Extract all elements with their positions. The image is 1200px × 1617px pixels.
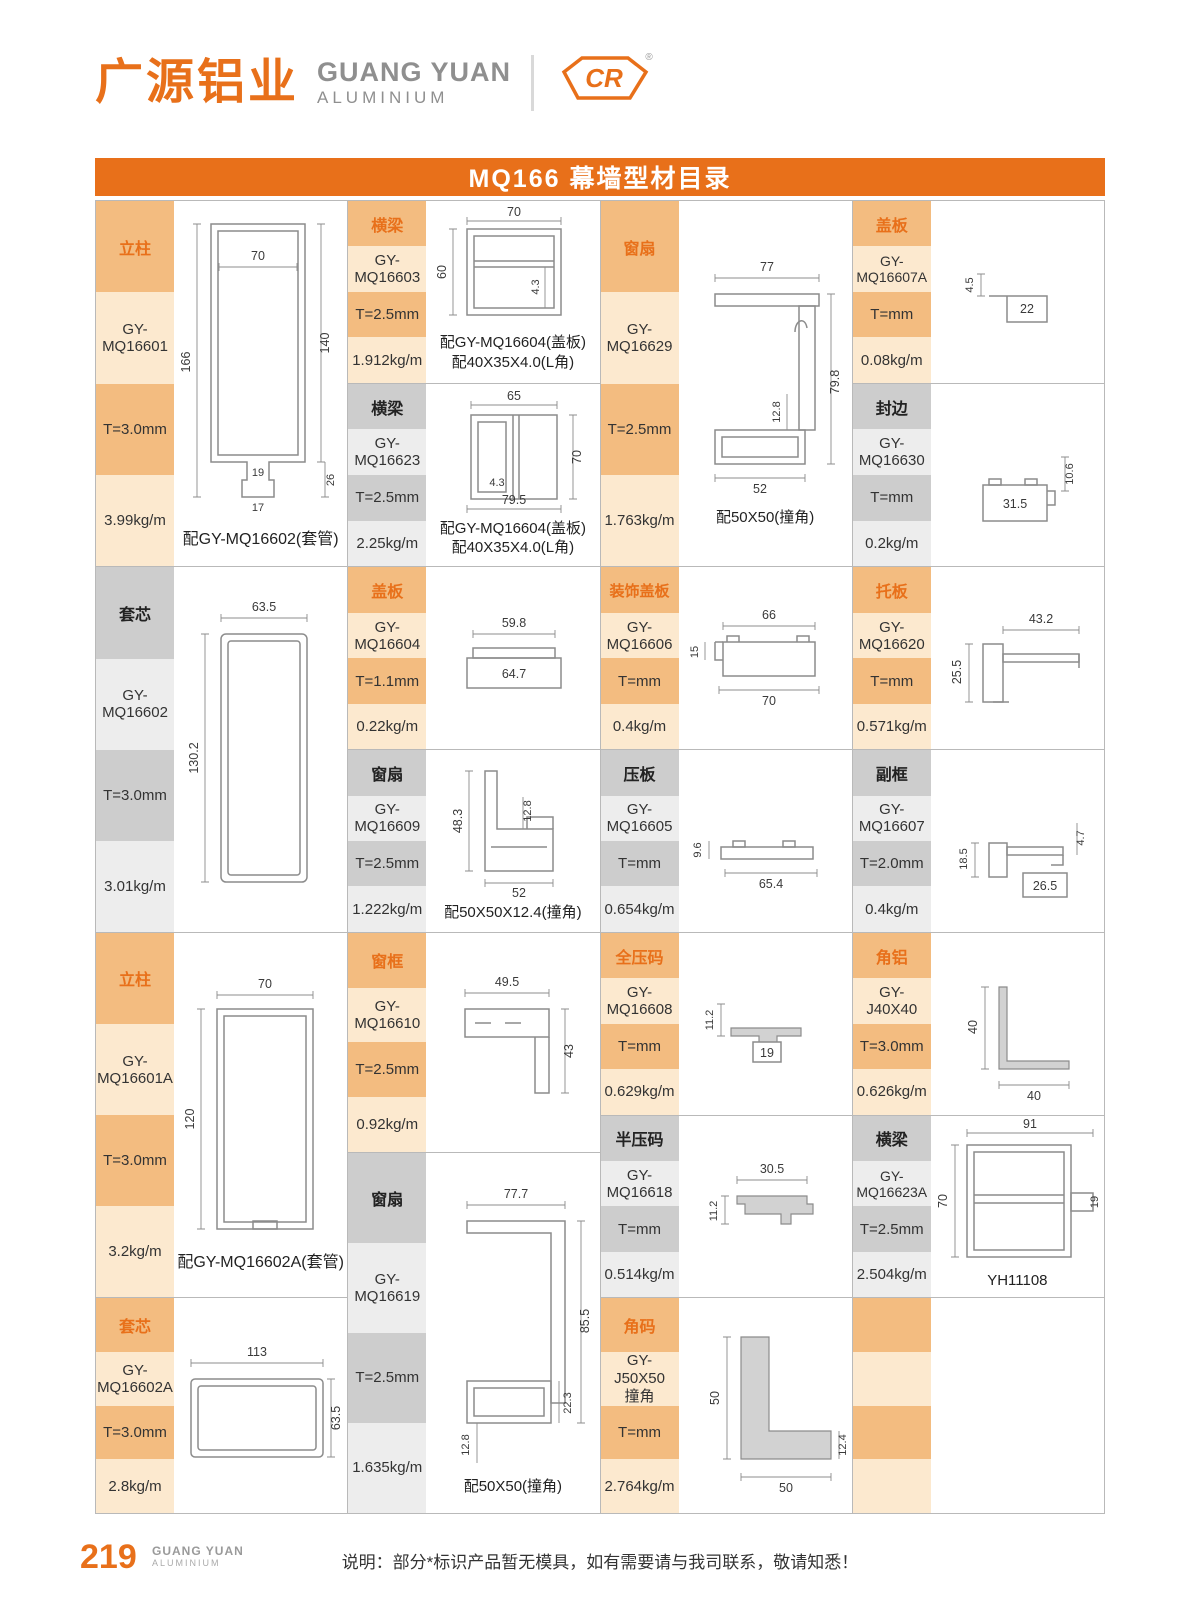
product-code: GY-J50X50 撞角 [601,1352,679,1406]
profile-outline [737,1196,813,1224]
profile-drawing: 11.2 19 [679,933,852,1115]
profile-drawing: 66 15 70 [679,567,852,749]
dim-label: 26 [325,474,337,486]
dim-label: 43 [562,1044,576,1058]
dim-label: 70 [507,205,521,219]
dim-label: 64.7 [502,667,526,681]
weight-value: 1.635kg/m [348,1423,426,1513]
dim-label: 12.8 [771,401,783,422]
column-group-1: 立柱 GY-MQ16601 T=3.0mm 3.99kg/m 70 166 14… [96,201,348,1513]
thickness-value: T=mm [853,475,931,521]
profile-outline [217,1009,313,1229]
profile-block: 横梁 GY-MQ16623A T=2.5mm 2.504kg/m 91 70 1… [853,1116,1104,1299]
weight-value: 3.2kg/m [96,1206,174,1297]
dim-label: 91 [1023,1117,1037,1131]
dim-label: 9.6 [692,842,704,857]
profile-block: 半压码 GY-MQ16618 T=mm 0.514kg/m 30.5 11.2 [601,1116,852,1299]
label-column: 全压码 GY-MQ16608 T=mm 0.629kg/m [601,933,679,1115]
weight-value: 2.764kg/m [601,1459,679,1513]
label-column: 立柱 GY-MQ16601 T=3.0mm 3.99kg/m [96,201,174,566]
brand-logo-chinese: 广源铝业 [95,59,299,107]
thickness-value: T=2.5mm [348,292,426,337]
product-code: GY-MQ16608 [601,978,679,1023]
category-label: 半压码 [601,1116,679,1161]
profile-outline [983,644,1003,702]
category-label: 托板 [853,567,931,612]
profile-sketch: 70 60 4.3 [427,205,599,331]
product-code: GY-MQ16602 [96,659,174,750]
code-line: GY-J50X50 [603,1352,677,1388]
profile-sketch: 10.6 31.5 [931,395,1103,555]
dim-label: 130.2 [187,742,201,773]
profile-drawing: 70 60 4.3 配GY-MQ16604(盖板) 配40X35X4.0(L角) [426,201,599,383]
drawing-caption: YH11108 [985,1269,1049,1297]
code-line: 撞角 [624,1388,654,1406]
profile-drawing: 40 40 [931,933,1104,1115]
dim-label: 4.5 [964,277,976,292]
dim-label: 59.8 [502,616,526,630]
product-code: GY-MQ16629 [601,292,679,383]
dim-label: 50 [779,1481,793,1495]
profile-drawing: 59.8 64.7 [426,567,599,749]
dim-label: 120 [183,1108,197,1129]
profile-block: 托板 GY-MQ16620 T=mm 0.571kg/m 43.2 25.5 [853,567,1104,750]
dim-label: 52 [512,886,526,900]
drawing-caption: 配50X50(撞角) [714,506,816,534]
category-label: 封边 [853,384,931,430]
category-label: 压板 [601,750,679,795]
profile-block: 立柱 GY-MQ16601 T=3.0mm 3.99kg/m 70 166 14… [96,201,347,567]
product-code: GY-MQ16630 [853,429,931,475]
profile-block: 盖板 GY-MQ16604 T=1.1mm 0.22kg/m 59.8 64.7 [348,567,599,750]
dim-label: 50 [708,1391,722,1405]
category-label: 装饰盖板 [601,567,679,612]
empty-block [853,1298,1104,1513]
thickness-value: T=2.5mm [348,1042,426,1097]
label-column: 窗扇 GY-MQ16629 T=2.5mm 1.763kg/m [601,201,679,566]
caption-line: 配GY-MQ16604(盖板) [440,333,586,353]
category-label: 套芯 [96,567,174,658]
label-column: 封边 GY-MQ16630 T=mm 0.2kg/m [853,384,931,567]
category-label: 全压码 [601,933,679,978]
profile-sketch: 65 4.3 70 79.5 [427,387,599,517]
profile-outline [741,1337,831,1459]
dim-label: 77 [760,260,774,274]
product-code: GY-MQ16602A [96,1352,174,1406]
profile-sketch: 91 70 19 [931,1117,1103,1269]
category-label: 窗扇 [348,750,426,795]
weight-value: 1.912kg/m [348,337,426,382]
weight-value: 1.763kg/m [601,475,679,566]
dim-label: 70 [258,977,272,991]
label-column: 横梁 GY-MQ16603 T=2.5mm 1.912kg/m [348,201,426,383]
profile-sketch: 30.5 11.2 [679,1126,851,1286]
weight-value: 2.8kg/m [96,1459,174,1513]
profile-drawing [931,1298,1104,1513]
thickness-value: T=mm [853,658,931,703]
dim-label: 65 [507,389,521,403]
dim-label: 4.7 [1075,830,1087,845]
profile-block: 套芯 GY-MQ16602A T=3.0mm 2.8kg/m 113 63.5 [96,1298,347,1513]
catalog-title: MQ166 幕墙型材目录 [469,159,732,195]
profile-outline [967,1145,1071,1257]
weight-value: 0.629kg/m [601,1069,679,1114]
profile-outline [191,1379,323,1457]
caption-line: 配GY-MQ16604(盖板) [440,519,586,539]
dim-label: 11.2 [704,1009,716,1030]
column-group-4: 盖板 GY-MQ16607A T=mm 0.08kg/m 4.5 22 封边 G… [853,201,1104,1513]
weight-value: 0.08kg/m [853,337,931,382]
category-label: 立柱 [96,933,174,1024]
dim-label: 52 [753,482,767,496]
profile-sketch: 49.5 43 [427,947,599,1137]
product-code: GY-MQ16620 [853,613,931,658]
profile-drawing: 43.2 25.5 [931,567,1104,749]
caption-line: 配40X35X4.0(L角) [440,538,586,558]
brand-name-en: GUANG YUAN [317,58,511,88]
thickness-value: T=3.0mm [96,1115,174,1206]
category-label: 角铝 [853,933,931,978]
weight-value: 0.2kg/m [853,521,931,567]
profile-catalog-table: 立柱 GY-MQ16601 T=3.0mm 3.99kg/m 70 166 14… [95,200,1105,1514]
profile-outline [473,648,555,658]
drawing-caption: 配GY-MQ16602A(套管) [175,1251,346,1280]
profile-sketch: 77.7 85.5 22.3 12.8 [427,1163,599,1475]
profile-block: 压板 GY-MQ16605 T=mm 0.654kg/m 9.6 65.4 [601,750,852,933]
profile-drawing: 70 166 140 19 26 17 配GY-MQ16602(套管) [174,201,347,566]
dim-label: 19 [760,1046,774,1060]
profile-sketch: 9.6 65.4 [679,761,851,921]
profile-sketch: 11.2 19 [679,944,851,1104]
profile-block: 盖板 GY-MQ16607A T=mm 0.08kg/m 4.5 22 [853,201,1104,384]
profile-block: 窗扇 GY-MQ16629 T=2.5mm 1.763kg/m 77 79.8 [601,201,852,567]
dim-label: 113 [247,1345,267,1359]
thickness-value: T=mm [601,1406,679,1460]
dim-label: 77.7 [504,1187,528,1201]
profile-drawing: 9.6 65.4 [679,750,852,932]
page-number: 219 [80,1540,137,1574]
profile-sketch: 113 63.5 [175,1301,347,1511]
category-label: 套芯 [96,1298,174,1352]
category-label: 盖板 [348,567,426,612]
profile-drawing: 91 70 19 YH11108 [931,1116,1104,1298]
product-code: GY-MQ16604 [348,613,426,658]
dim-label: 18.5 [958,848,970,869]
profile-outline [989,296,1047,322]
label-column: 角码 GY-J50X50 撞角 T=mm 2.764kg/m [601,1298,679,1513]
weight-value: 0.654kg/m [601,886,679,931]
label-column: 压板 GY-MQ16605 T=mm 0.654kg/m [601,750,679,932]
product-code: GY-MQ16607A [853,246,931,291]
dim-label: 25.5 [950,660,964,684]
profile-outline [211,224,305,497]
dim-label: 65.4 [759,877,783,891]
product-code: GY-MQ16605 [601,796,679,841]
catalog-title-bar: MQ166 幕墙型材目录 [95,158,1105,196]
profile-block: 角铝 GY-J40X40 T=3.0mm 0.626kg/m 40 40 [853,933,1104,1116]
label-column: 装饰盖板 GY-MQ16606 T=mm 0.4kg/m [601,567,679,749]
profile-drawing: 4.5 22 [931,201,1104,383]
profile-sketch: 4.5 22 [931,212,1103,372]
drawing-caption: 配50X50X12.4(撞角) [442,901,584,929]
product-code [853,1352,931,1406]
product-code: GY-MQ16603 [348,246,426,291]
thickness-value [853,1406,931,1460]
product-code: GY-MQ16610 [348,988,426,1043]
profile-sketch: 26.5 18.5 4.7 [931,761,1103,921]
dim-label: 10.6 [1064,463,1076,484]
category-label: 副框 [853,750,931,795]
profile-block: 立柱 GY-MQ16601A T=3.0mm 3.2kg/m 70 120 配G… [96,933,347,1298]
profile-block: 横梁 GY-MQ16603 T=2.5mm 1.912kg/m 70 60 4.… [348,201,599,384]
product-code: GY-MQ16623A [853,1161,931,1206]
column-group-3: 窗扇 GY-MQ16629 T=2.5mm 1.763kg/m 77 79.8 [601,201,853,1513]
category-label: 横梁 [853,1116,931,1161]
profile-outline [467,229,561,315]
dim-label: 85.5 [578,1309,592,1333]
profile-block: 横梁 GY-MQ16623 T=2.5mm 2.25kg/m 65 4.3 70… [348,384,599,568]
profile-outline [485,771,553,871]
profile-outline [723,642,815,676]
category-label [853,1298,931,1352]
dim-label: 70 [251,249,265,263]
profile-block: 全压码 GY-MQ16608 T=mm 0.629kg/m 11.2 19 [601,933,852,1116]
label-column: 盖板 GY-MQ16607A T=mm 0.08kg/m [853,201,931,383]
profile-sketch: 43.2 25.5 [931,578,1103,738]
drawing-caption: 配GY-MQ16602(套管) [181,528,341,557]
category-label: 窗扇 [601,201,679,292]
label-column: 盖板 GY-MQ16604 T=1.1mm 0.22kg/m [348,567,426,749]
profile-drawing: 26.5 18.5 4.7 [931,750,1104,932]
product-code: GY-MQ16618 [601,1161,679,1206]
weight-value: 0.514kg/m [601,1252,679,1297]
profile-sketch: 59.8 64.7 [427,578,599,738]
dim-label: 140 [318,333,332,354]
category-label: 窗扇 [348,1153,426,1243]
profile-block: 封边 GY-MQ16630 T=mm 0.2kg/m 10.6 31.5 [853,384,1104,568]
category-label: 盖板 [853,201,931,246]
profile-drawing: 49.5 43 [426,933,599,1152]
header-divider [531,55,534,111]
label-column: 横梁 GY-MQ16623A T=2.5mm 2.504kg/m [853,1116,931,1298]
dim-label: 40 [1027,1089,1041,1103]
dim-label: 40 [966,1020,980,1034]
thickness-value: T=2.5mm [348,475,426,521]
badge-letters: CR [585,63,623,93]
dim-label: 70 [570,450,584,464]
profile-drawing: 113 63.5 [174,1298,347,1513]
weight-value: 0.92kg/m [348,1097,426,1152]
thickness-value: T=2.5mm [348,841,426,886]
profile-drawing: 50 50 12.4 [679,1298,852,1513]
weight-value [853,1459,931,1513]
thickness-value: T=1.1mm [348,658,426,703]
profile-outline [471,415,557,499]
dim-label: 12.8 [522,801,534,822]
dim-label: 15 [689,646,701,658]
weight-value: 0.571kg/m [853,704,931,749]
dim-label: 63.5 [329,1405,343,1429]
profile-drawing: 77.7 85.5 22.3 12.8 配50X50(撞角) [426,1153,599,1513]
product-code: GY-J40X40 [853,978,931,1023]
label-column: 套芯 GY-MQ16602 T=3.0mm 3.01kg/m [96,567,174,931]
dim-label: 48.3 [451,809,465,833]
profile-drawing: 63.5 130.2 [174,567,347,931]
dim-label: 70 [936,1194,950,1208]
thickness-value: T=mm [853,292,931,337]
label-column: 窗扇 GY-MQ16619 T=2.5mm 1.635kg/m [348,1153,426,1513]
label-column: 立柱 GY-MQ16601A T=3.0mm 3.2kg/m [96,933,174,1297]
category-label: 立柱 [96,201,174,292]
dim-label: 4.3 [530,280,542,295]
category-label: 横梁 [348,201,426,246]
profile-outline [467,1221,565,1403]
drawing-caption: 配GY-MQ16604(盖板) 配40X35X4.0(L角) [438,517,588,564]
weight-value: 1.222kg/m [348,886,426,931]
dim-label: 79.5 [502,493,526,507]
registered-mark: ® [645,52,653,63]
label-column: 窗扇 GY-MQ16609 T=2.5mm 1.222kg/m [348,750,426,932]
dim-label: 19 [1089,1196,1101,1208]
caption-line: 配40X35X4.0(L角) [440,353,586,373]
label-column: 横梁 GY-MQ16623 T=2.5mm 2.25kg/m [348,384,426,567]
profile-sketch: 50 50 12.4 [679,1303,851,1508]
weight-value: 2.25kg/m [348,521,426,567]
drawing-caption: 配50X50(撞角) [462,1475,564,1503]
product-code: GY-MQ16623 [348,429,426,475]
label-column [853,1298,931,1513]
thickness-value: T=3.0mm [96,750,174,841]
dim-label: 4.3 [489,477,504,489]
thickness-value: T=mm [601,1024,679,1069]
weight-value: 0.4kg/m [601,704,679,749]
dim-label: 49.5 [495,975,519,989]
profile-sketch: 70 166 140 19 26 17 [175,210,347,528]
product-code: GY-MQ16609 [348,796,426,841]
product-code: GY-MQ16606 [601,613,679,658]
weight-value: 0.22kg/m [348,704,426,749]
profile-sketch: 48.3 12.8 52 [427,753,599,901]
brand-logo-english: GUANG YUAN ALUMINIUM [317,58,511,108]
dim-label: 166 [179,352,193,373]
label-column: 托板 GY-MQ16620 T=mm 0.571kg/m [853,567,931,749]
product-code: GY-MQ16607 [853,796,931,841]
profile-sketch: 66 15 70 [679,578,851,738]
profile-block: 套芯 GY-MQ16602 T=3.0mm 3.01kg/m 63.5 130.… [96,567,347,932]
dim-label: 70 [762,694,776,708]
thickness-value: T=3.0mm [96,1406,174,1460]
profile-drawing: 65 4.3 70 79.5 配GY-MQ16604(盖板) 配40X35X4.… [426,384,599,567]
profile-outline [221,634,307,882]
thickness-value: T=2.5mm [348,1333,426,1423]
profile-outline [989,843,1007,877]
dim-label: 26.5 [1033,879,1057,893]
profile-sketch: 77 79.8 12.8 52 [679,234,851,506]
product-code: GY-MQ16619 [348,1243,426,1333]
dim-label: 66 [762,608,776,622]
thickness-value: T=2.0mm [853,841,931,886]
label-column: 套芯 GY-MQ16602A T=3.0mm 2.8kg/m [96,1298,174,1513]
dim-label: 12.8 [460,1434,472,1455]
column-group-2: 横梁 GY-MQ16603 T=2.5mm 1.912kg/m 70 60 4.… [348,201,600,1513]
profile-block: 副框 GY-MQ16607 T=2.0mm 0.4kg/m 26.5 18.5 … [853,750,1104,933]
thickness-value: T=2.5mm [601,384,679,475]
dim-label: 12.4 [837,1434,849,1455]
profile-outline [715,294,819,306]
thickness-value: T=2.5mm [853,1206,931,1251]
label-column: 角铝 GY-J40X40 T=3.0mm 0.626kg/m [853,933,931,1115]
thickness-value: T=3.0mm [853,1024,931,1069]
profile-drawing: 10.6 31.5 [931,384,1104,567]
label-column: 窗框 GY-MQ16610 T=2.5mm 0.92kg/m [348,933,426,1152]
profile-block: 窗扇 GY-MQ16609 T=2.5mm 1.222kg/m 48.3 12.… [348,750,599,933]
product-code: GY-MQ16601 [96,292,174,383]
profile-block: 装饰盖板 GY-MQ16606 T=mm 0.4kg/m 66 15 70 [601,567,852,750]
drawing-caption: 配GY-MQ16604(盖板) 配40X35X4.0(L角) [438,331,588,378]
dim-label: 63.5 [251,600,275,614]
page-footer: 219 GUANG YUAN ALUMINIUM 说明：部分*标识产品暂无模具，… [80,1540,1120,1600]
dim-label: 11.2 [708,1201,720,1222]
profile-outline [999,987,1069,1069]
dim-label: 60 [435,265,449,279]
dim-label: 79.8 [828,370,842,394]
profile-outline [721,847,813,859]
weight-value: 0.4kg/m [853,886,931,931]
dim-label: 22.3 [562,1392,574,1413]
profile-block: 窗框 GY-MQ16610 T=2.5mm 0.92kg/m 49.5 43 [348,933,599,1153]
page-header: 广源铝业 GUANG YUAN ALUMINIUM CR ® [95,38,1105,128]
category-label: 横梁 [348,384,426,430]
dim-label: 17 [252,502,264,514]
dim-label: 19 [252,467,264,479]
profile-sketch: 70 120 [175,951,347,1251]
thickness-value: T=mm [601,1206,679,1251]
thickness-value: T=mm [601,658,679,703]
product-code: GY-MQ16601A [96,1024,174,1115]
label-column: 半压码 GY-MQ16618 T=mm 0.514kg/m [601,1116,679,1298]
profile-block: 窗扇 GY-MQ16619 T=2.5mm 1.635kg/m 77.7 85.… [348,1153,599,1513]
profile-sketch: 40 40 [931,939,1103,1109]
profile-drawing: 48.3 12.8 52 配50X50X12.4(撞角) [426,750,599,932]
profile-block: 角码 GY-J50X50 撞角 T=mm 2.764kg/m 50 50 12.… [601,1298,852,1513]
category-label: 窗框 [348,933,426,988]
footer-note: 说明：部分*标识产品暂无模具，如有需要请与我司联系，敬请知悉！ [200,1548,1000,1573]
brand-sub-en: ALUMINIUM [317,88,511,108]
weight-value: 2.504kg/m [853,1252,931,1297]
category-label: 角码 [601,1298,679,1352]
profile-drawing: 30.5 11.2 [679,1116,852,1298]
dim-label: 22 [1020,302,1034,316]
weight-value: 0.626kg/m [853,1069,931,1114]
cr-badge-icon: CR ® [554,50,654,116]
profile-drawing: 70 120 配GY-MQ16602A(套管) [174,933,347,1297]
dim-label: 30.5 [760,1162,784,1176]
profile-drawing: 77 79.8 12.8 52 配50X50(撞角) [679,201,852,566]
label-column: 副框 GY-MQ16607 T=2.0mm 0.4kg/m [853,750,931,932]
dim-label: 43.2 [1029,612,1053,626]
thickness-value: T=mm [601,841,679,886]
profile-sketch: 63.5 130.2 [175,572,347,928]
dim-label: 31.5 [1003,497,1027,511]
thickness-value: T=3.0mm [96,384,174,475]
weight-value: 3.99kg/m [96,475,174,566]
weight-value: 3.01kg/m [96,841,174,932]
